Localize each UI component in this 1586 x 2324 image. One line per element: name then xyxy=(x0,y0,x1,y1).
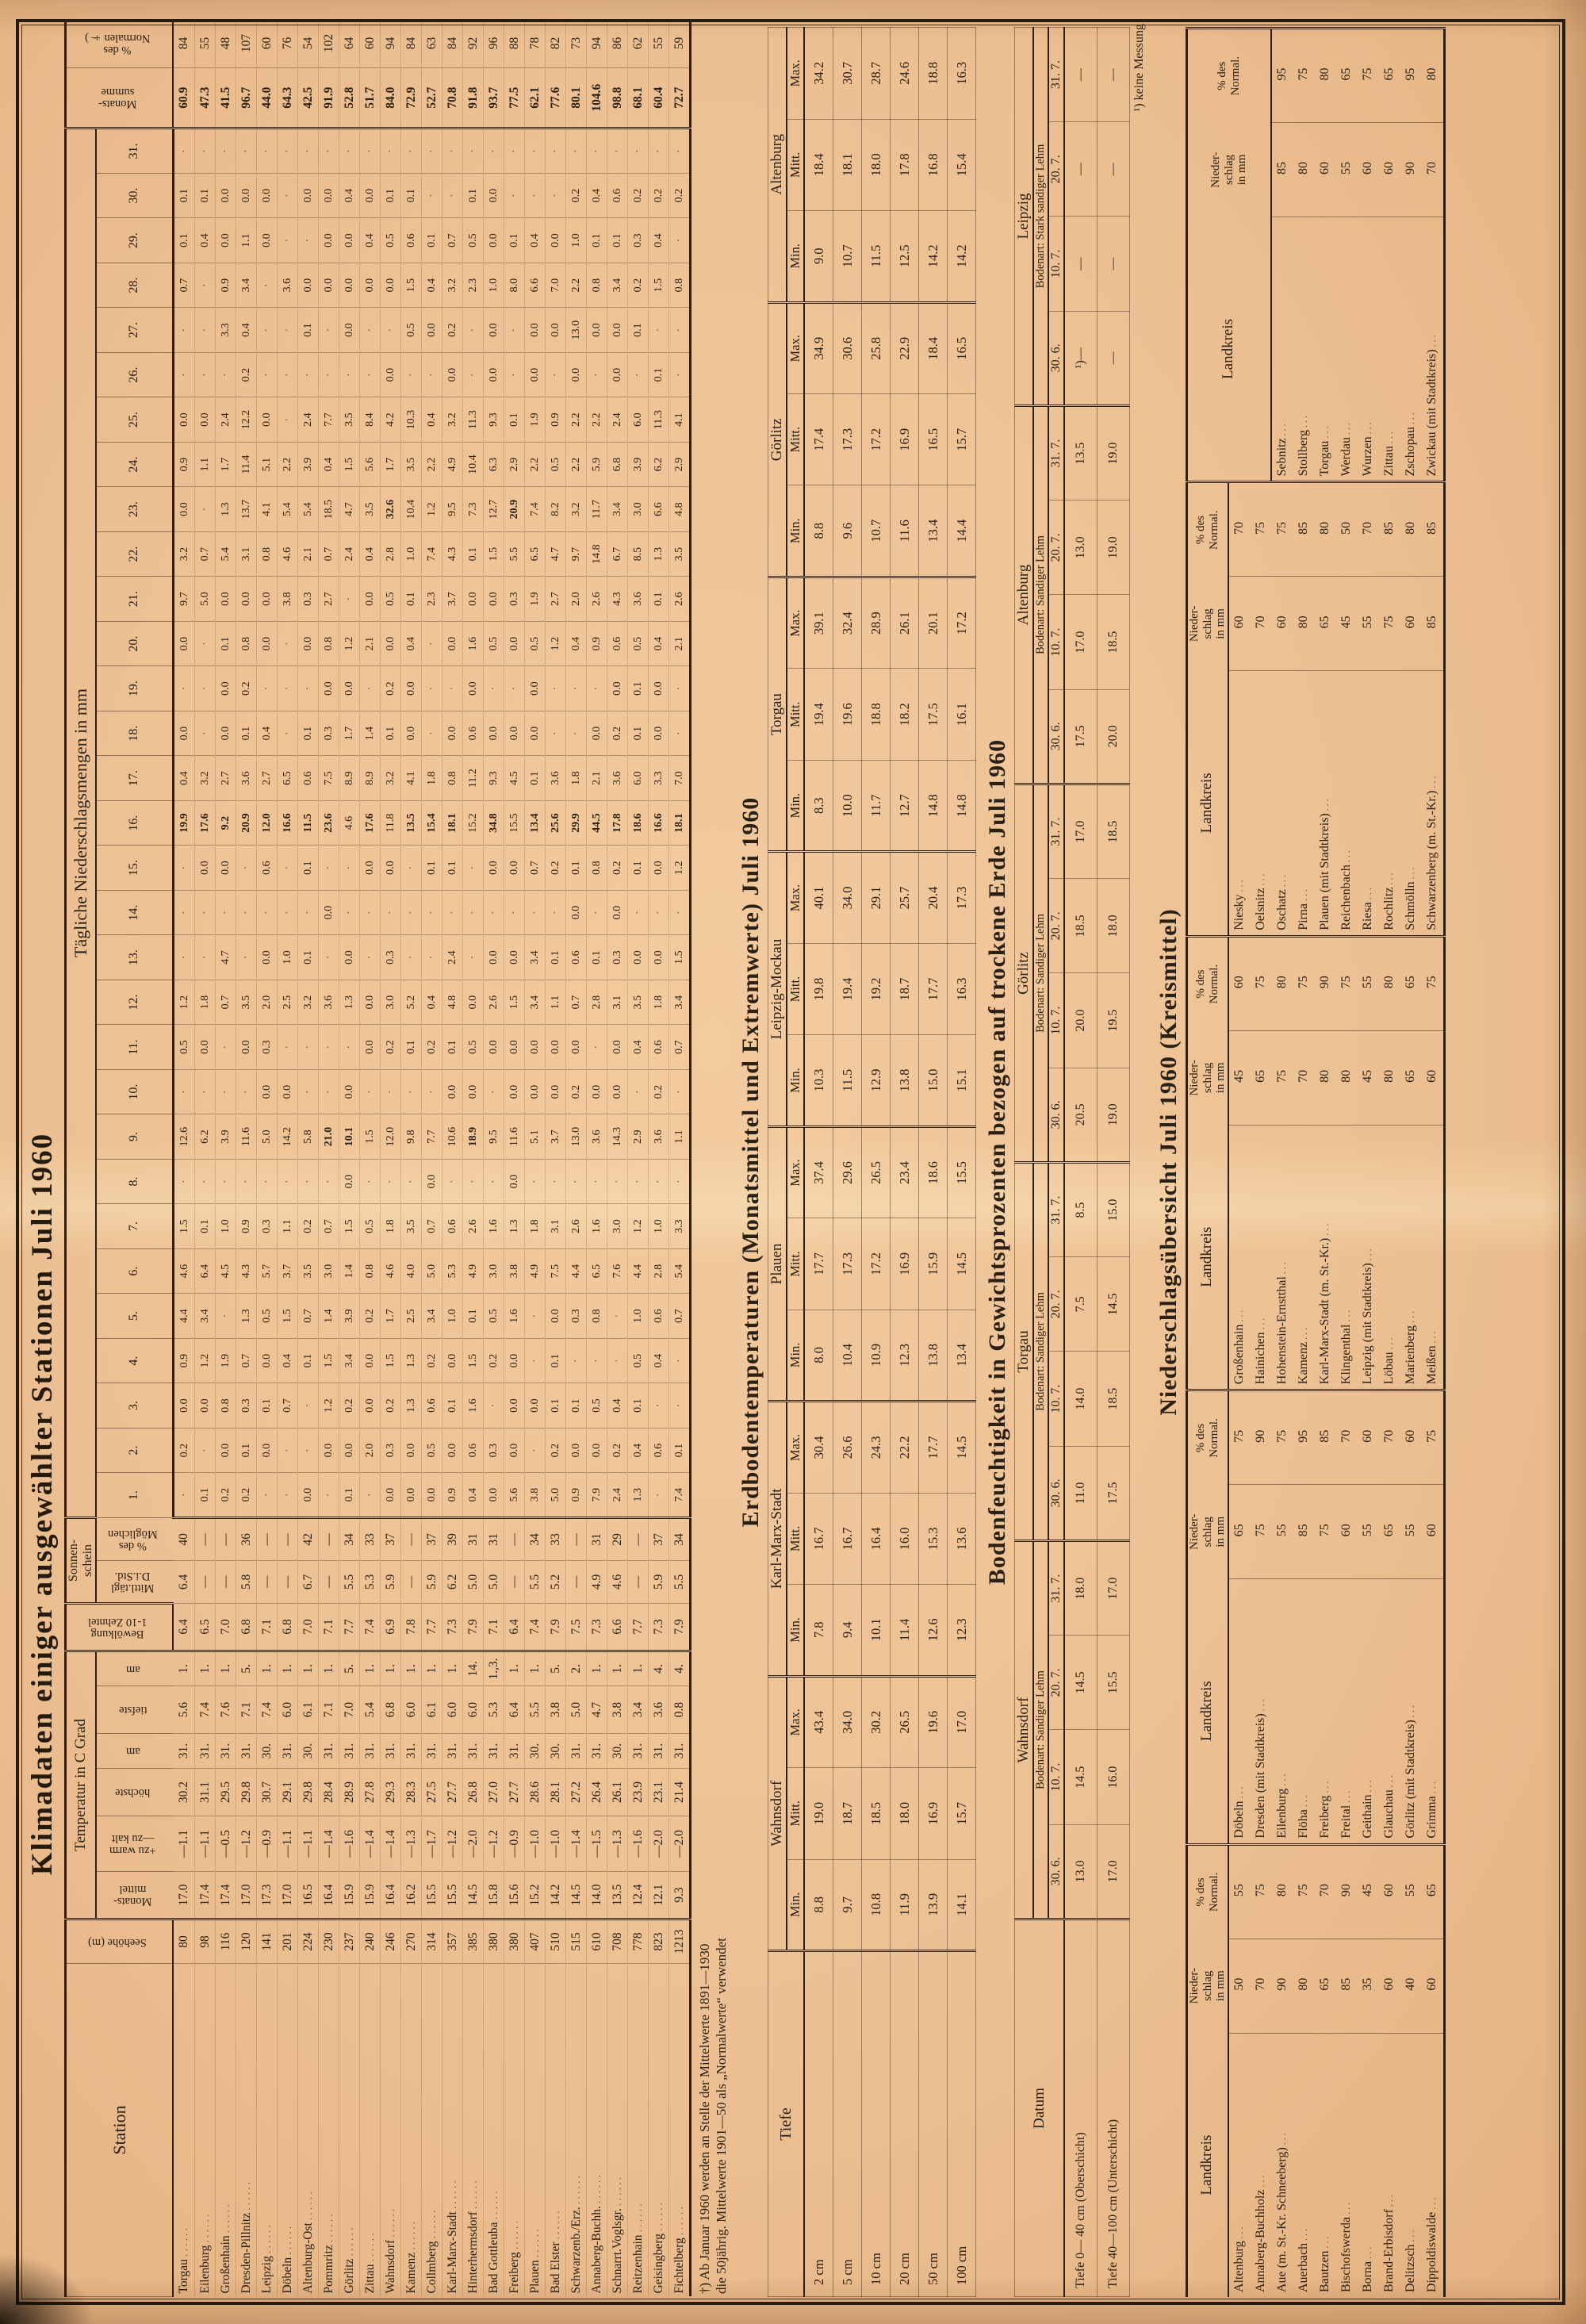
col-header-day: 11. xyxy=(96,1025,173,1070)
day-precip-cell: 0.7 xyxy=(668,1025,690,1070)
bodenfeuchte-unter-value: — xyxy=(1098,122,1130,217)
niederschlag-pct-value: 60 xyxy=(1379,1844,1400,1939)
day-precip-cell: · xyxy=(524,1294,545,1339)
landkreis-name: Eilenburg . . . xyxy=(1272,1579,1293,1843)
day-precip-cell: 44.5 xyxy=(586,800,607,846)
bewoelkung-value: 7.5 xyxy=(565,1603,586,1651)
erdboden-mitt-value: 19.4 xyxy=(804,669,833,760)
station-row: Bad Elster ​. . . . . .51014.2—1.028.130… xyxy=(545,19,565,2297)
day-precip-cell: 7.9 xyxy=(586,1473,607,1518)
bodenfeuchte-date-header: 10. 7. xyxy=(1048,217,1064,311)
day-precip-cell: · xyxy=(215,1159,236,1204)
bewoelkung-value: 6.4 xyxy=(173,1603,194,1651)
min-temp-date: 1. xyxy=(421,1651,442,1685)
station-row: Collmberg ​. . . . . .31415.5—1.727.531.… xyxy=(421,19,442,2297)
day-precip-cell: 0.6 xyxy=(607,173,627,218)
day-precip-cell: · xyxy=(256,1473,277,1518)
bewoelkung-value: 7.4 xyxy=(524,1603,545,1651)
day-precip-cell: · xyxy=(627,352,648,397)
sonnenschein-std-value: — xyxy=(400,1560,421,1603)
bodenfeuchte-date-header: 20. 7. xyxy=(1048,879,1064,973)
niederschlag-mm-value: 60 xyxy=(1358,123,1379,217)
day-precip-cell: 0.1 xyxy=(400,577,421,622)
day-precip-cell: 2.3 xyxy=(421,577,442,622)
station-name: Dresden-Pillnitz ​. . . . . . xyxy=(236,1964,256,2297)
niederschlag-pct-header: % des Normal. xyxy=(1187,1844,1228,1939)
day-precip-cell: 0.0 xyxy=(173,1383,194,1429)
sonnenschein-pct-value: 37 xyxy=(421,1517,442,1560)
day-precip-cell: 15.5 xyxy=(504,800,524,846)
erdboden-max-value: 20.4 xyxy=(919,852,948,943)
day-precip-cell: · xyxy=(380,1069,400,1114)
niederschlag-row: Werdau . . .5565 xyxy=(1336,28,1358,481)
day-precip-cell: 2.9 xyxy=(668,442,690,487)
day-precip-cell: 10.6 xyxy=(442,1114,462,1160)
day-precip-cell: 0.0 xyxy=(586,1069,607,1114)
day-precip-cell: 0.4 xyxy=(462,1473,483,1518)
day-precip-cell: · xyxy=(524,890,545,935)
day-precip-cell: 2.2 xyxy=(586,397,607,443)
day-precip-cell: 3.4 xyxy=(524,935,545,980)
min-temp-value: 3.8 xyxy=(607,1686,627,1734)
niederschlag-mm-value: 85 xyxy=(1422,577,1445,671)
day-precip-cell: 2.4 xyxy=(442,935,462,980)
day-precip-cell: 8.9 xyxy=(339,756,359,801)
day-precip-cell: 0.4 xyxy=(339,173,359,218)
niederschlag-pct-value: 60 xyxy=(1358,1390,1379,1485)
erdboden-mitt-value: 17.2 xyxy=(862,394,891,485)
niederschlag-mm-value: 80 xyxy=(1293,577,1315,671)
erdboden-mitt-value: 18.7 xyxy=(833,1768,862,1859)
station-row: Görlitz ​. . . . . .23715.9—1.628.931.7.… xyxy=(339,19,359,2297)
day-precip-cell: 0.0 xyxy=(339,263,359,308)
erdboden-min-value: 14.2 xyxy=(948,211,976,302)
erdboden-max-value: 30.2 xyxy=(862,1676,891,1767)
col-header-day: 1. xyxy=(96,1473,173,1518)
day-precip-cell: 3.5 xyxy=(400,442,421,487)
monatssumme-value: 44.0 xyxy=(256,68,277,128)
niederschlag-pct-value: 75 xyxy=(1272,482,1293,577)
day-precip-cell: 2.4 xyxy=(607,1473,627,1518)
day-precip-cell: 0.0 xyxy=(442,1338,462,1383)
erdboden-mitt-value: 15.3 xyxy=(919,1493,948,1584)
erdboden-station-header: Görlitz xyxy=(768,302,787,577)
erdboden-min-value: 13.8 xyxy=(919,1310,948,1401)
monatsmittel-value: 15.9 xyxy=(339,1872,359,1919)
abweichung-value: —1.1 xyxy=(297,1816,318,1872)
day-precip-cell: · xyxy=(277,1159,297,1204)
day-precip-cell: 0.3 xyxy=(380,1428,400,1473)
min-temp-date: 1. xyxy=(524,1651,545,1685)
erdboden-max-value: 26.1 xyxy=(891,577,919,668)
day-precip-cell: · xyxy=(400,846,421,891)
station-row: Leipzig ​. . . . . .14117.3—0.930.730.7.… xyxy=(256,19,277,2297)
col-header-day: 6. xyxy=(96,1248,173,1294)
day-precip-cell: 4.9 xyxy=(524,1248,545,1294)
min-temp-date: 1. xyxy=(504,1651,524,1685)
erdboden-min-value: 14.2 xyxy=(919,211,948,302)
klimadaten-table: StationSeehöhe (m)Temperatur in C GradBe… xyxy=(64,19,691,2297)
niederschlag-landkreis-header: Landkreis xyxy=(1187,2033,1228,2297)
day-precip-cell: 1.0 xyxy=(215,1204,236,1249)
min-temp-date: 1. xyxy=(277,1651,297,1685)
sonnenschein-pct-value: — xyxy=(504,1517,524,1560)
landkreis-name: Löbau . . . xyxy=(1379,1125,1400,1389)
day-precip-cell: 0.6 xyxy=(442,1204,462,1249)
day-precip-cell: 0.0 xyxy=(442,711,462,756)
day-precip-cell: 0.1 xyxy=(297,308,318,353)
niederschlag-row: Kamenz . . .7075 xyxy=(1293,936,1315,1389)
day-precip-cell: · xyxy=(339,890,359,935)
prozent-normalen-value: 48 xyxy=(215,19,236,68)
max-temp-date: 31. xyxy=(668,1734,690,1769)
day-precip-cell: · xyxy=(359,1159,380,1204)
day-precip-cell: · xyxy=(194,263,215,308)
landkreis-name: Dippoldiswalde . . . xyxy=(1422,2033,1445,2297)
niederschlag-row: Riesa . . .5570 xyxy=(1358,482,1379,935)
niederschlag-row: Döbeln . . .6575 xyxy=(1228,1390,1251,1843)
min-temp-value: 3.8 xyxy=(545,1686,565,1734)
station-row: Kamenz ​. . . . . .27016.2—1.328.331.6.0… xyxy=(400,19,421,2297)
day-precip-cell: 0.0 xyxy=(277,1069,297,1114)
niederschlag-row: Annaberg-Buchholz . . .7075 xyxy=(1251,1844,1272,2297)
day-precip-cell: 6.0 xyxy=(627,397,648,443)
erdboden-min-value: 10.3 xyxy=(804,1035,833,1126)
erdboden-min-value: 13.9 xyxy=(919,1859,948,1950)
erdboden-max-value: 24.3 xyxy=(862,1402,891,1493)
station-row: Karl-Marx-Stadt ​. . . . . .35715.5—1.22… xyxy=(442,19,462,2297)
day-precip-cell: 0.3 xyxy=(607,935,627,980)
station-name: Reitzenhain ​. . . . . . xyxy=(627,1964,648,2297)
day-precip-cell: · xyxy=(607,128,627,174)
day-precip-cell: 2.1 xyxy=(359,621,380,666)
niederschlag-pct-value: 70 xyxy=(1336,1390,1358,1485)
day-precip-cell: 1.5 xyxy=(173,1204,194,1249)
prozent-normalen-value: 62 xyxy=(627,19,648,68)
day-precip-cell: 1.9 xyxy=(524,397,545,443)
day-precip-cell: 0.0 xyxy=(504,1338,524,1383)
bewoelkung-value: 7.1 xyxy=(256,1603,277,1651)
day-precip-cell: · xyxy=(339,846,359,891)
monatsmittel-value: 16.2 xyxy=(400,1872,421,1919)
day-precip-cell: 0.0 xyxy=(215,711,236,756)
erdboden-depth-label: 50 cm xyxy=(919,1951,948,2297)
day-precip-cell: 1.5 xyxy=(400,263,421,308)
day-precip-cell: 0.0 xyxy=(359,263,380,308)
erdboden-mitt-value: 16.9 xyxy=(891,1218,919,1310)
sonnenschein-std-value: — xyxy=(277,1560,297,1603)
day-precip-cell: 0.0 xyxy=(462,1069,483,1114)
niederschlag-pct-value: 85 xyxy=(1293,482,1315,577)
erdboden-mitt-value: 18.8 xyxy=(862,669,891,760)
erdboden-min-value: 11.9 xyxy=(891,1859,919,1950)
day-precip-cell: 8.5 xyxy=(627,531,648,577)
paper-sheet: Klimadaten einiger ausgewählter Statione… xyxy=(0,0,1586,2324)
bodenfeuchte-ober-value: 13.0 xyxy=(1064,500,1098,595)
day-precip-cell: 0.0 xyxy=(504,1159,524,1204)
abweichung-value: —0.9 xyxy=(256,1816,277,1872)
erdboden-max-value: 30.6 xyxy=(833,302,862,393)
day-precip-cell: 14.3 xyxy=(607,1114,627,1160)
day-precip-cell: 0.0 xyxy=(504,711,524,756)
col-header-temp-sub: am xyxy=(96,1651,173,1685)
day-precip-cell: 0.0 xyxy=(173,711,194,756)
day-precip-cell: 2.8 xyxy=(380,531,400,577)
max-temp-date: 31. xyxy=(359,1734,380,1769)
erdboden-mitt-value: 17.7 xyxy=(804,1218,833,1310)
day-precip-cell: 0.0 xyxy=(648,935,668,980)
min-temp-value: 6.1 xyxy=(297,1686,318,1734)
day-precip-cell: · xyxy=(215,890,236,935)
erdboden-mitt-value: 17.3 xyxy=(833,1218,862,1310)
day-precip-cell: · xyxy=(215,352,236,397)
day-precip-cell: 6.6 xyxy=(648,487,668,532)
day-precip-cell: 0.6 xyxy=(462,711,483,756)
day-precip-cell: 0.0 xyxy=(318,173,339,218)
day-precip-cell: 3.4 xyxy=(236,263,256,308)
day-precip-cell: · xyxy=(277,711,297,756)
landkreis-name: Oschatz . . . xyxy=(1272,671,1293,935)
day-precip-cell: 0.6 xyxy=(565,935,586,980)
niederschlag-mm-value: 45 xyxy=(1228,1030,1251,1125)
day-precip-cell: 0.5 xyxy=(359,1204,380,1249)
day-precip-cell: 0.2 xyxy=(359,1294,380,1339)
day-precip-cell: 3.7 xyxy=(442,577,462,622)
niederschlag-pct-value: 80 xyxy=(1272,1844,1293,1939)
seehoehe-value: 237 xyxy=(339,1919,359,1964)
station-name: Fichtelberg ​. . . . . . xyxy=(668,1964,690,2297)
bewoelkung-value: 7.1 xyxy=(483,1603,504,1651)
niederschlag-pct-header: % des Normal. xyxy=(1187,28,1271,122)
min-temp-date: 1. xyxy=(215,1651,236,1685)
erdboden-mitt-value: 19.0 xyxy=(804,1768,833,1859)
sonnenschein-pct-value: 36 xyxy=(236,1517,256,1560)
niederschlag-pct-value: 80 xyxy=(1315,28,1336,122)
seehoehe-value: 201 xyxy=(277,1919,297,1964)
day-precip-cell: 0.0 xyxy=(297,173,318,218)
day-precip-cell: 0.1 xyxy=(504,218,524,263)
monatsmittel-value: 13.5 xyxy=(607,1872,627,1919)
station-name: Pommritz ​. . . . . . xyxy=(318,1964,339,2297)
day-precip-cell: 4.6 xyxy=(173,1248,194,1294)
vertical-header-label: tiefste xyxy=(119,1704,147,1716)
day-precip-cell: 0.9 xyxy=(442,1473,462,1518)
min-temp-date: 1. xyxy=(297,1651,318,1685)
erdboden-min-value: 8.3 xyxy=(804,760,833,851)
day-precip-cell: 0.1 xyxy=(545,1383,565,1429)
monatsmittel-value: 12.4 xyxy=(627,1872,648,1919)
niederschlag-pct-value: 55 xyxy=(1228,1844,1251,1939)
sonnenschein-std-value: 4.6 xyxy=(607,1560,627,1603)
day-precip-cell: 6.5 xyxy=(277,756,297,801)
erdboden-mitt-value: 16.9 xyxy=(891,394,919,485)
day-precip-cell: 0.7 xyxy=(565,980,586,1025)
erdboden-max-value: 16.5 xyxy=(948,302,976,393)
day-precip-cell: 0.8 xyxy=(586,263,607,308)
sonnenschein-pct-value: — xyxy=(627,1517,648,1560)
erdboden-min-value: 10.7 xyxy=(833,211,862,302)
station-row: Freiberg ​. . . . . .38015.6—0.927.731.6… xyxy=(504,19,524,2297)
monatsmittel-value: 15.5 xyxy=(421,1872,442,1919)
day-precip-cell: · xyxy=(297,1383,318,1429)
abweichung-value: —1.2 xyxy=(483,1816,504,1872)
erdboden-min-value: 11.5 xyxy=(862,211,891,302)
erdboden-table: TiefeWahnsdorfKarl-Marx-StadtPlauenLeipz… xyxy=(768,27,976,2297)
station-name: Schwarzenb./Erz. ​. . . . . . xyxy=(565,1964,586,2297)
erdboden-subcol-header: Min. xyxy=(787,211,804,302)
day-precip-cell: 0.4 xyxy=(400,621,421,666)
niederschlag-pct-value: 70 xyxy=(1228,482,1251,577)
bodenfeuchte-unter-value: 17.0 xyxy=(1098,1824,1130,1919)
day-precip-cell: 1.7 xyxy=(339,711,359,756)
day-precip-cell: 3.6 xyxy=(648,1114,668,1160)
day-precip-cell: 0.1 xyxy=(421,846,442,891)
erdboden-station-header: Karl-Marx-Stadt xyxy=(768,1402,787,1676)
niederschlag-row: Auerbach . . .8075 xyxy=(1293,1844,1315,2297)
day-precip-cell: 3.3 xyxy=(668,1204,690,1249)
day-precip-cell: 10.4 xyxy=(462,442,483,487)
bodenfeuchte-date-header: 31. 7. xyxy=(1048,28,1064,122)
day-precip-cell: · xyxy=(504,666,524,711)
day-precip-cell: 8.9 xyxy=(359,756,380,801)
station-name: Bad Elster ​. . . . . . xyxy=(545,1964,565,2297)
col-header-day: 8. xyxy=(96,1159,173,1204)
niederschlag-row: Wurzen . . .6075 xyxy=(1358,28,1379,481)
erdboden-subcol-header: Max. xyxy=(787,302,804,393)
day-precip-cell: 2.0 xyxy=(359,1428,380,1473)
day-precip-cell: · xyxy=(173,1159,194,1204)
niederschlag-row: Torgau . . .6080 xyxy=(1315,28,1336,481)
niederschlag-pct-value: 65 xyxy=(1400,936,1422,1030)
day-precip-cell: 0.0 xyxy=(607,308,627,353)
station-name: Torgau ​. . . . . . xyxy=(173,1964,194,2297)
landkreis-name: Klingenthal . . . xyxy=(1336,1125,1358,1389)
sonnenschein-std-value: 5.5 xyxy=(339,1560,359,1603)
monatsmittel-value: 14.5 xyxy=(462,1872,483,1919)
day-precip-cell: 2.9 xyxy=(504,442,524,487)
day-precip-cell: · xyxy=(297,1159,318,1204)
max-temp-value: 29.1 xyxy=(277,1769,297,1816)
day-precip-cell: 0.1 xyxy=(236,711,256,756)
vertical-header-label: am xyxy=(126,1662,140,1674)
seehoehe-value: 120 xyxy=(236,1919,256,1964)
day-precip-cell: · xyxy=(668,218,690,263)
monatsmittel-value: 17.0 xyxy=(173,1872,194,1919)
landkreis-name: Grimma . . . xyxy=(1422,1579,1445,1843)
niederschlag-mm-value: 70 xyxy=(1422,123,1445,217)
prozent-normalen-value: 54 xyxy=(297,19,318,68)
niederschlag-pct-value: 90 xyxy=(1336,1844,1358,1939)
day-precip-cell: · xyxy=(215,128,236,174)
sonnenschein-pct-value: — xyxy=(277,1517,297,1560)
min-temp-date: 1. xyxy=(400,1651,421,1685)
min-temp-date: 1. xyxy=(586,1651,607,1685)
erdboden-max-value: 23.4 xyxy=(891,1126,919,1218)
day-precip-cell: · xyxy=(483,1159,504,1204)
erdboden-min-value: 10.1 xyxy=(862,1585,891,1676)
niederschlag-mm-value: 60 xyxy=(1228,577,1251,671)
day-precip-cell: 0.0 xyxy=(236,173,256,218)
col-header-day: 18. xyxy=(96,711,173,756)
day-precip-cell: · xyxy=(462,352,483,397)
col-header-day: 31. xyxy=(96,128,173,174)
monatssumme-value: 41.5 xyxy=(215,68,236,128)
station-row: Fichtelberg ​. . . . . .12139.3—2.021.43… xyxy=(668,19,690,2297)
seehoehe-value: 708 xyxy=(607,1919,627,1964)
landkreis-name: Görlitz (mit Stadtkreis) . . . xyxy=(1400,1579,1422,1843)
day-precip-cell: 11.8 xyxy=(380,800,400,846)
day-precip-cell: · xyxy=(627,890,648,935)
monatsmittel-value: 17.4 xyxy=(215,1872,236,1919)
niederschlag-mm-value: 60 xyxy=(1315,123,1336,217)
day-precip-cell: 0.7 xyxy=(668,1294,690,1339)
max-temp-date: 31. xyxy=(483,1734,504,1769)
col-header-temperatur: Temperatur in C Grad xyxy=(66,1651,97,1919)
monatsmittel-value: 17.3 xyxy=(256,1872,277,1919)
erdboden-max-value: 18.4 xyxy=(919,302,948,393)
max-temp-value: 27.2 xyxy=(565,1769,586,1816)
day-precip-cell: · xyxy=(524,1338,545,1383)
day-precip-cell: · xyxy=(277,1473,297,1518)
erdboden-mitt-value: 17.3 xyxy=(833,394,862,485)
day-precip-cell: 2.5 xyxy=(277,980,297,1025)
day-precip-cell: 18.5 xyxy=(318,487,339,532)
day-precip-cell: · xyxy=(277,846,297,891)
day-precip-cell: · xyxy=(173,352,194,397)
day-precip-cell: 0.4 xyxy=(565,621,586,666)
monatsmittel-value: 15.8 xyxy=(483,1872,504,1919)
max-temp-value: 26.4 xyxy=(586,1769,607,1816)
niederschlag-mm-header: Nieder- schlag in mm xyxy=(1187,123,1271,217)
niederschlag-pct-value: 55 xyxy=(1400,1844,1422,1939)
bewoelkung-value: 7.7 xyxy=(627,1603,648,1651)
vertical-header-label: Bewölkung 1-10 Zehntel xyxy=(88,1615,147,1639)
day-precip-cell: 18.6 xyxy=(627,800,648,846)
bodenfeuchte-date-header: 10. 7. xyxy=(1048,595,1064,689)
day-precip-cell: 0.4 xyxy=(359,218,380,263)
day-precip-cell: 7.4 xyxy=(421,531,442,577)
day-precip-cell: 4.4 xyxy=(627,1248,648,1294)
day-precip-cell: 0.0 xyxy=(524,1069,545,1114)
day-precip-cell: · xyxy=(256,263,277,308)
day-precip-cell: 0.1 xyxy=(565,1383,586,1429)
erdboden-depth-label: 20 cm xyxy=(891,1951,919,2297)
day-precip-cell: · xyxy=(607,1294,627,1339)
day-precip-cell: 1.3 xyxy=(504,1204,524,1249)
day-precip-cell: 0.0 xyxy=(194,846,215,891)
day-precip-cell: 0.5 xyxy=(400,308,421,353)
erdboden-max-value: 29.1 xyxy=(862,852,891,943)
max-temp-date: 31. xyxy=(462,1734,483,1769)
niederschlag-mm-value: 50 xyxy=(1228,1939,1251,2033)
day-precip-cell: 0.8 xyxy=(668,263,690,308)
min-temp-value: 7.4 xyxy=(256,1686,277,1734)
day-precip-cell: 5.1 xyxy=(524,1114,545,1160)
sonnenschein-std-value: 6.2 xyxy=(442,1560,462,1603)
day-precip-cell: 5.8 xyxy=(297,1114,318,1160)
col-header-day: 14. xyxy=(96,890,173,935)
day-precip-cell: · xyxy=(297,1069,318,1114)
niederschlag-pct-value: 50 xyxy=(1336,482,1358,577)
max-temp-value: 29.8 xyxy=(297,1769,318,1816)
day-precip-cell: · xyxy=(173,128,194,174)
day-precip-cell: 13.7 xyxy=(236,487,256,532)
col-header-day: 12. xyxy=(96,980,173,1025)
niederschlag-mm-value: 65 xyxy=(1379,1485,1400,1579)
day-precip-cell: · xyxy=(173,935,194,980)
min-temp-value: 6.4 xyxy=(504,1686,524,1734)
scanned-document-page: Klimadaten einiger ausgewählter Statione… xyxy=(0,0,1586,2324)
